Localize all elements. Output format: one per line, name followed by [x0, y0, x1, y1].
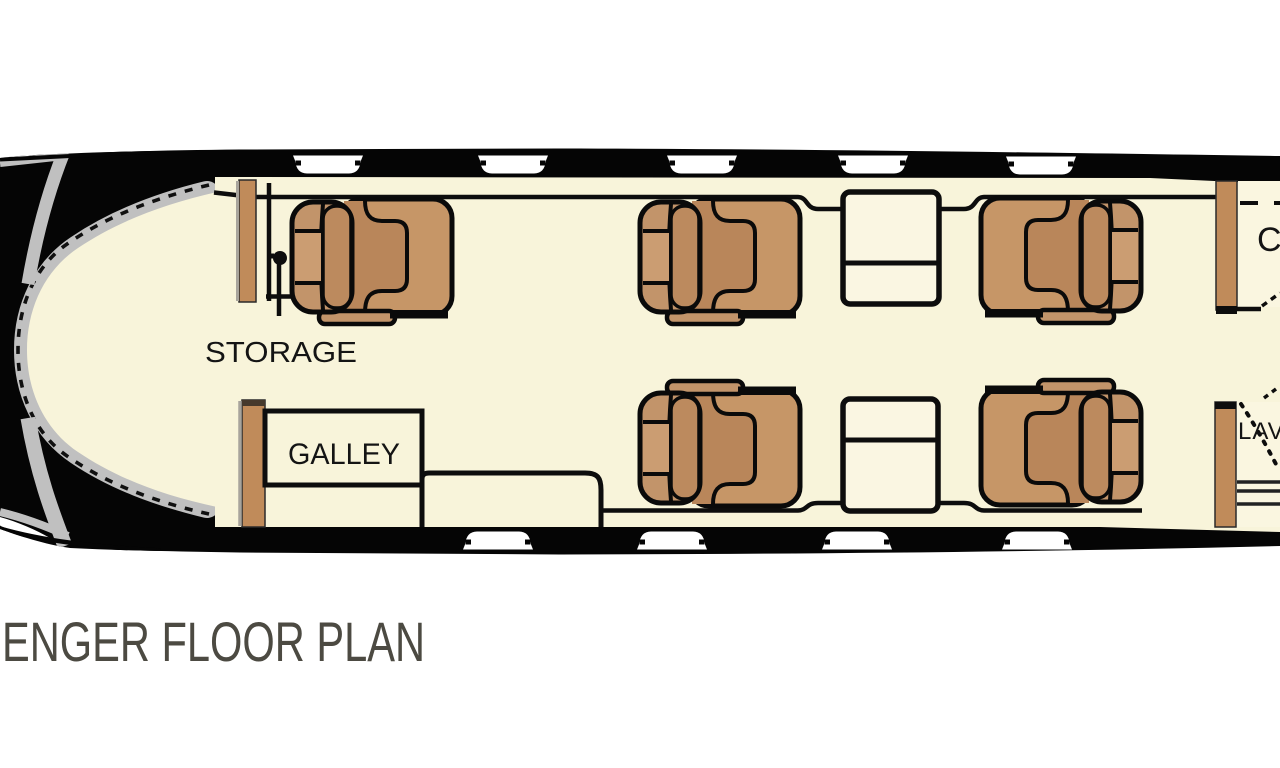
svg-text:LAV: LAV	[1238, 418, 1280, 445]
svg-text:CLOSET: CLOSET	[1257, 221, 1280, 259]
svg-text:ENGER FLOOR PLAN: ENGER FLOOR PLAN	[2, 610, 425, 673]
svg-text:GALLEY: GALLEY	[288, 438, 400, 471]
svg-text:STORAGE: STORAGE	[205, 337, 357, 369]
